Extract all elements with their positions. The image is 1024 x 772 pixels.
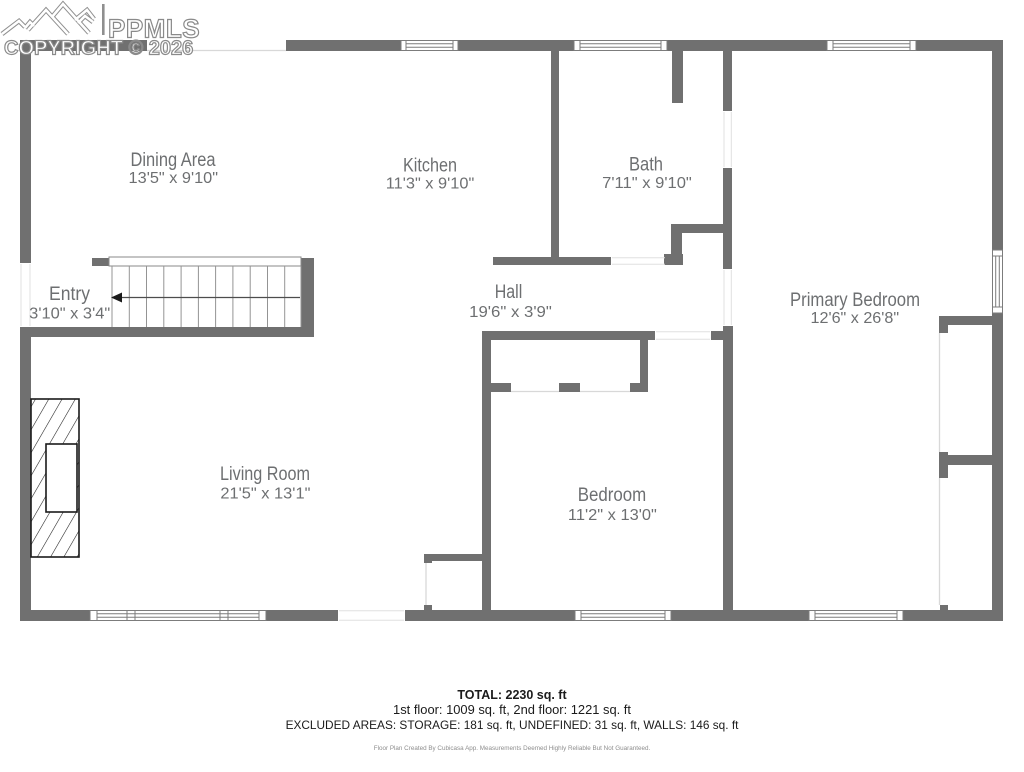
svg-text:3'10" x 3'4": 3'10" x 3'4" [29, 306, 110, 323]
svg-text:Entry: Entry [49, 284, 90, 305]
svg-text:Floor Plan Created By Cubicasa: Floor Plan Created By Cubicasa App. Meas… [374, 745, 651, 752]
svg-text:TOTAL: 2230 sq. ft: TOTAL: 2230 sq. ft [457, 688, 567, 702]
svg-text:13'5" x 9'10": 13'5" x 9'10" [129, 170, 219, 187]
svg-text:Primary Bedroom: Primary Bedroom [790, 290, 920, 311]
svg-text:11'3" x 9'10": 11'3" x 9'10" [386, 176, 475, 193]
svg-text:7'11" x 9'10": 7'11" x 9'10" [602, 175, 692, 192]
svg-text:Bedroom: Bedroom [578, 485, 647, 506]
svg-text:11'2" x 13'0": 11'2" x 13'0" [568, 507, 657, 524]
svg-text:Living Room: Living Room [220, 464, 310, 485]
svg-text:19'6" x 3'9": 19'6" x 3'9" [469, 304, 552, 321]
svg-text:Bath: Bath [629, 155, 663, 176]
svg-text:21'5" x 13'1": 21'5" x 13'1" [220, 486, 310, 503]
svg-text:12'6" x 26'8": 12'6" x 26'8" [811, 310, 900, 327]
svg-text:EXCLUDED AREAS: STORAGE: 181 s: EXCLUDED AREAS: STORAGE: 181 sq. ft, UND… [286, 718, 740, 732]
svg-text:Hall: Hall [495, 282, 523, 303]
svg-text:Dining Area: Dining Area [131, 150, 216, 171]
svg-text:COPYRIGHT © 2026: COPYRIGHT © 2026 [4, 38, 193, 60]
svg-text:1st floor: 1009 sq. ft, 2nd fl: 1st floor: 1009 sq. ft, 2nd floor: 1221 … [393, 702, 631, 717]
svg-text:Kitchen: Kitchen [403, 156, 457, 177]
